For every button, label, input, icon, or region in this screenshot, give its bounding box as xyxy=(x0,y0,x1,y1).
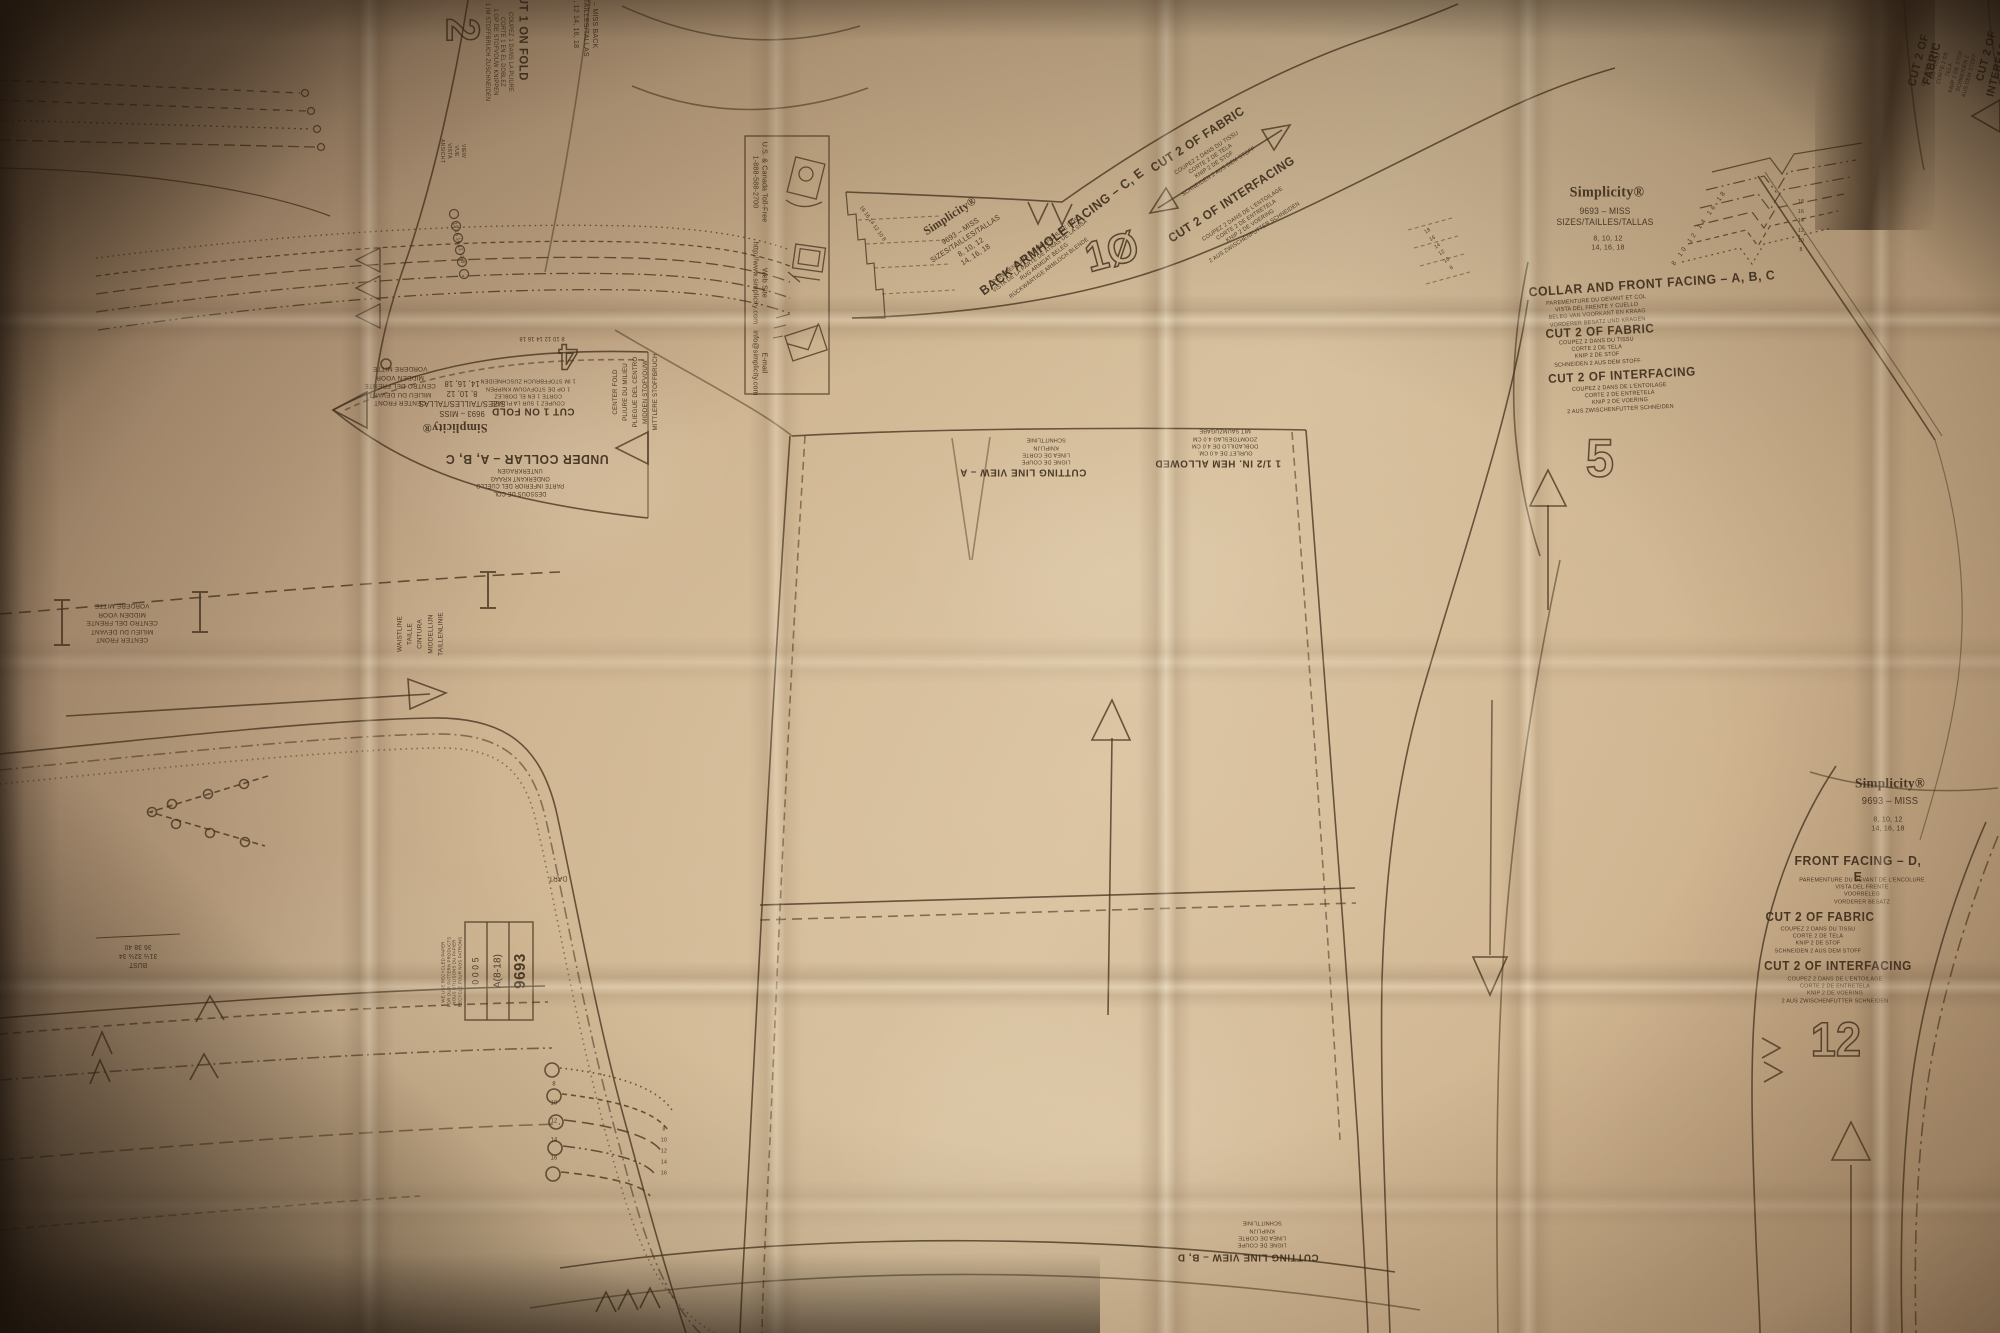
undercollar-number: 4 xyxy=(558,335,577,380)
infobox-phone-label: U.S. & Canada Toll-Free 1-888-588-2700 xyxy=(751,142,770,223)
pattern-number-box-size: A(8-18) xyxy=(491,954,504,988)
facingDE-brand-sizes: 8, 10, 12 14, 16, 18 xyxy=(1871,815,1904,834)
pattern-number-box-number: 9693 xyxy=(511,953,531,989)
facing5-sizes-right: 18 16 14 12 10 8 xyxy=(1798,198,1804,256)
skirtA-cuttingline-sub: LIGNE DE COUPE LINEA DE CORTE KNIPLIJN S… xyxy=(1022,436,1071,465)
facingDE-number: 12 xyxy=(1811,1011,1862,1071)
leftpiece-bust-table: BUST 31½ 32½ 34 36 38 40 xyxy=(119,942,157,968)
facing5-cut2-interfacing-sub: COUPEZ 2 DANS DE L'ENTOILAGE CORTE 2 DE … xyxy=(1566,382,1674,416)
facing5-title: COLLAR AND FRONT FACING – A, B, C xyxy=(1528,267,1776,300)
skirtA-hem-allowance-sub: OURLET DE 4.0 CM. DOBLADILLO DE 4.0 CM Z… xyxy=(1192,427,1258,456)
skirtA-cuttingline: CUTTING LINE VIEW – A xyxy=(960,465,1087,478)
leftpiece-dart-label: DART xyxy=(549,873,568,882)
undercollar-cut1-onfold: CUT 1 ON FOLD xyxy=(491,404,574,417)
facing5-brand-info: 9693 – MISS SIZES/TAILLES/TALLAS xyxy=(1556,206,1653,229)
collar-sizes-column: 18 16 14 12 10 8 xyxy=(450,222,465,264)
facingDE-cut2-interfacing-sub: COUPEZ 2 DANS DE L'ENTOILAGE CORTE 2 DE … xyxy=(1782,977,1889,1006)
skirtBD-cuttingline: CUTTING LINE VIEW – B, D xyxy=(1177,1250,1318,1263)
piece2-info-block: 9693 – MISS BACK SIZES/TAILLES/TALLAS 8,… xyxy=(572,0,600,57)
undercollar-title: UNDER COLLAR – A, B, C xyxy=(445,451,608,467)
facingDE-brand-logo: Simplicity® xyxy=(1855,775,1925,793)
piece2-cut1-onfold-sub: COUPEZ 1 DANS LA PLIURE CORTE 1 EN EL DO… xyxy=(483,3,513,101)
piece2-cut1-onfold: CUT 1 ON FOLD xyxy=(516,0,531,81)
facingDE-cut2-interfacing: CUT 2 OF INTERFACING xyxy=(1764,959,1912,975)
skirtBD-cuttingline-sub: LIGNE DE COUPE LINEA DE CORTE KNIPLIJN S… xyxy=(1238,1219,1287,1248)
leftpiece-fold-sizes-circles: 8 10 12 14 16 xyxy=(551,1076,558,1169)
pattern-text-layer: 2CUT 1 ON FOLDCOUPEZ 1 DANS LA PLIURE CO… xyxy=(0,0,2000,1333)
undercollar-cut1-onfold-sub: COUPEZ 1 SUR LA PLIURE CORTE 1 EN EL DOB… xyxy=(480,377,575,406)
facingDE-brand-info: 9693 – MISS xyxy=(1862,796,1918,809)
facing5-number: 5 xyxy=(1586,425,1614,493)
facingDE-title-sub: PAREMENTURE DU DEVANT DE L'ENCOLURE VIST… xyxy=(1799,878,1924,907)
infobox-web-label: Web Site http://www.simplicity.com xyxy=(751,242,770,325)
undercollar-centerfront: CENTER FRONT MILIEU DU DEVANT CENTRO DEL… xyxy=(364,364,435,406)
armfacing-sizes-left: 18 16 14 12 10 8 xyxy=(857,205,887,243)
skirtA-hem-allowance: 1 1/2 IN. HEM ALLOWED xyxy=(1155,456,1281,469)
facing5-cut2-fabric-sub: COUPEZ 2 DANS DU TISSU CORTE 2 DE TELA K… xyxy=(1553,336,1641,369)
armfacing-sizes-right: 18 16 14 12 10 8 xyxy=(1423,226,1457,274)
undercollar-centerfold: CENTER FOLD PLIURE DU MILIEU PLIEGUE DEL… xyxy=(611,353,661,430)
leftpiece-centerfront: CENTER FRONT MILIEU DU DEVANT CENTRO DEL… xyxy=(86,601,157,643)
undercollar-brand-logo: Simplicity® xyxy=(422,420,487,436)
facing5-sizes-arc: 8 10 12 14 16 18 xyxy=(1671,188,1730,267)
recycled-paper-note: WE USE RECYCLED PAPER FOR OUR PATTERN PR… xyxy=(441,937,464,1008)
leftpiece-waistline: WAISTLINE TAILLE CINTURA MIDDELLIJN TAIL… xyxy=(396,612,447,656)
piece2-views: VIEW VUE VISTA ANSICHT xyxy=(438,139,466,163)
facingDE-cut2-fabric-sub: COUPEZ 2 DANS DU TISSU CORTE 2 DE TELA K… xyxy=(1775,927,1862,956)
facing5-brand-sizes: 8, 10, 12 14, 16, 18 xyxy=(1591,234,1624,253)
undercollar-title-sub: DESSOUS DE COL PARTE INFERIOR DEL CUELLO… xyxy=(476,466,564,496)
leftpiece-fold-sizes-bend: 8 10 12 14 16 xyxy=(661,1125,667,1180)
facing5-brand-logo: Simplicity® xyxy=(1570,184,1645,203)
pattern-photo: 2CUT 1 ON FOLDCOUPEZ 1 DANS LA PLIURE CO… xyxy=(0,0,2000,1333)
facingDE-cut2-fabric: CUT 2 OF FABRIC xyxy=(1766,910,1875,926)
undercollar-sizes-cluster: 8 10 12 14 16 18 xyxy=(519,333,564,341)
infobox-email-label: E-mail info@simplicity.com xyxy=(751,330,770,395)
pattern-number-box-codes: 0 0 0 5 xyxy=(470,957,481,984)
